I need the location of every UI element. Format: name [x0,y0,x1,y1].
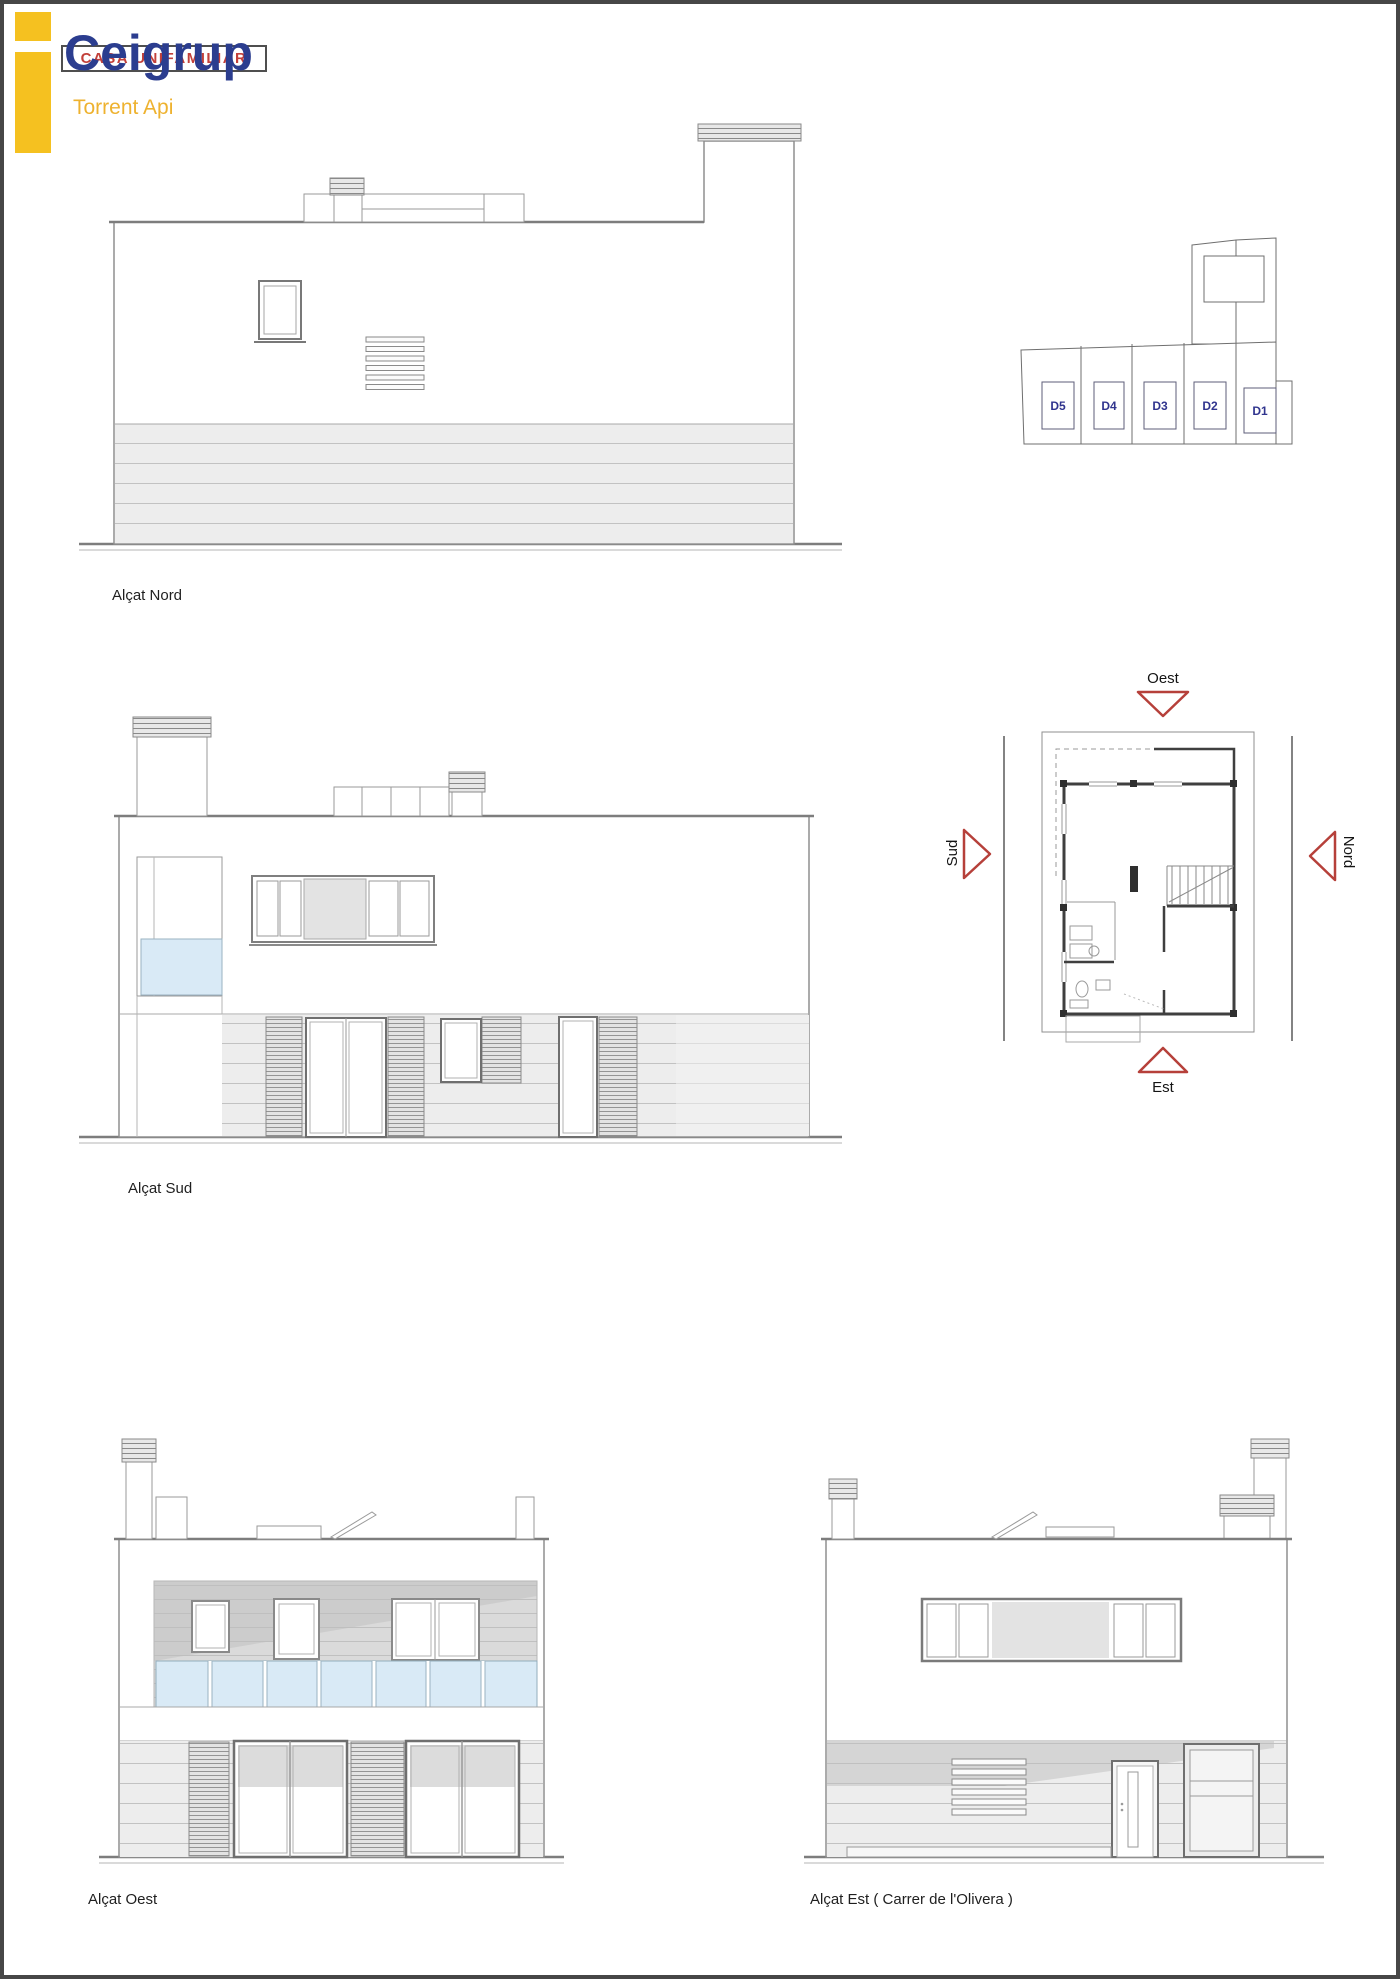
louver-panel [266,1017,302,1136]
orientation-label-sud: Sud [944,833,960,873]
label-alcat-nord: Alçat Nord [112,587,182,604]
orientation-label-est: Est [1132,1079,1194,1096]
louver-panel [482,1017,521,1083]
brand-logo-bar [15,52,51,153]
arrow-nord [1310,832,1335,880]
roof-box [516,1497,534,1539]
entry-step [847,1847,1111,1857]
upper-window-band [922,1599,1181,1661]
drawing-sheet-page: CASA UNIFAMILIAR Ceigrup Torrent Api Alç… [0,0,1400,1979]
plot-label-d4: D4 [1094,399,1124,413]
roof-box [1046,1527,1114,1537]
plot-boundary [1042,732,1254,1032]
arrow-oest [1138,692,1188,716]
roof-parapet [304,194,524,222]
garage-door [1184,1744,1259,1857]
roof-box [156,1497,187,1539]
small-window [441,1019,481,1082]
arrow-est [1139,1048,1187,1072]
building-footprint [1204,256,1264,302]
plot-label-d1: D1 [1244,404,1276,418]
chimney-mid [1224,1515,1270,1539]
cladding-band [115,424,793,543]
small-window [192,1601,229,1652]
label-alcat-oest: Alçat Oest [88,1891,157,1908]
elevation-oest-drawing [99,1439,564,1863]
chimney-2 [452,792,482,816]
tall-door [559,1017,597,1137]
chimney-cap [122,1439,156,1462]
chimney-tall-cap [1251,1439,1289,1458]
chimney-cap [330,178,364,195]
glass-panel [141,939,222,995]
brand-logo-dot [15,12,51,41]
elevation-sud-drawing [79,717,842,1143]
louver-panel [351,1742,404,1856]
entrance-door [1112,1761,1158,1857]
louver-panel [388,1017,424,1136]
chimney [126,1461,152,1539]
louver-panel [599,1017,637,1136]
sliding-door [306,1018,386,1137]
chimney [832,1498,854,1539]
sliding-door [406,1741,519,1857]
solar-panel [992,1512,1037,1539]
label-alcat-est: Alçat Est ( Carrer de l'Olivera ) [810,1891,1013,1908]
plot-label-d3: D3 [1144,399,1176,413]
brand-name: Ceigrup [64,26,253,81]
drawing-sheet-canvas [4,4,1400,1979]
window [254,281,306,342]
arrow-sud [964,830,990,878]
double-window [392,1599,479,1660]
elevation-nord-drawing [79,124,842,550]
plot-label-d5: D5 [1042,399,1074,413]
upper-window-band [249,876,437,945]
orientation-label-oest: Oest [1132,670,1194,687]
louver-panel [189,1742,229,1856]
brand-subtitle: Torrent Api [73,96,173,120]
label-alcat-sud: Alçat Sud [128,1180,192,1197]
tower-coping [698,124,801,141]
roof-box [257,1526,321,1539]
chimney-cap [133,717,211,737]
tall-window [274,1599,319,1659]
chimney-mid-cap [1220,1495,1274,1516]
floor-plan-drawing [964,692,1335,1072]
chimney-cap [829,1479,857,1499]
plot-label-d2: D2 [1194,399,1226,413]
chimney-2-cap [449,772,485,792]
chimney [137,737,207,816]
sliding-door [234,1741,347,1857]
elevation-est-drawing [804,1439,1324,1863]
glass-balustrade [156,1661,537,1707]
orientation-label-nord: Nord [1341,830,1357,874]
solar-panel [331,1512,376,1539]
